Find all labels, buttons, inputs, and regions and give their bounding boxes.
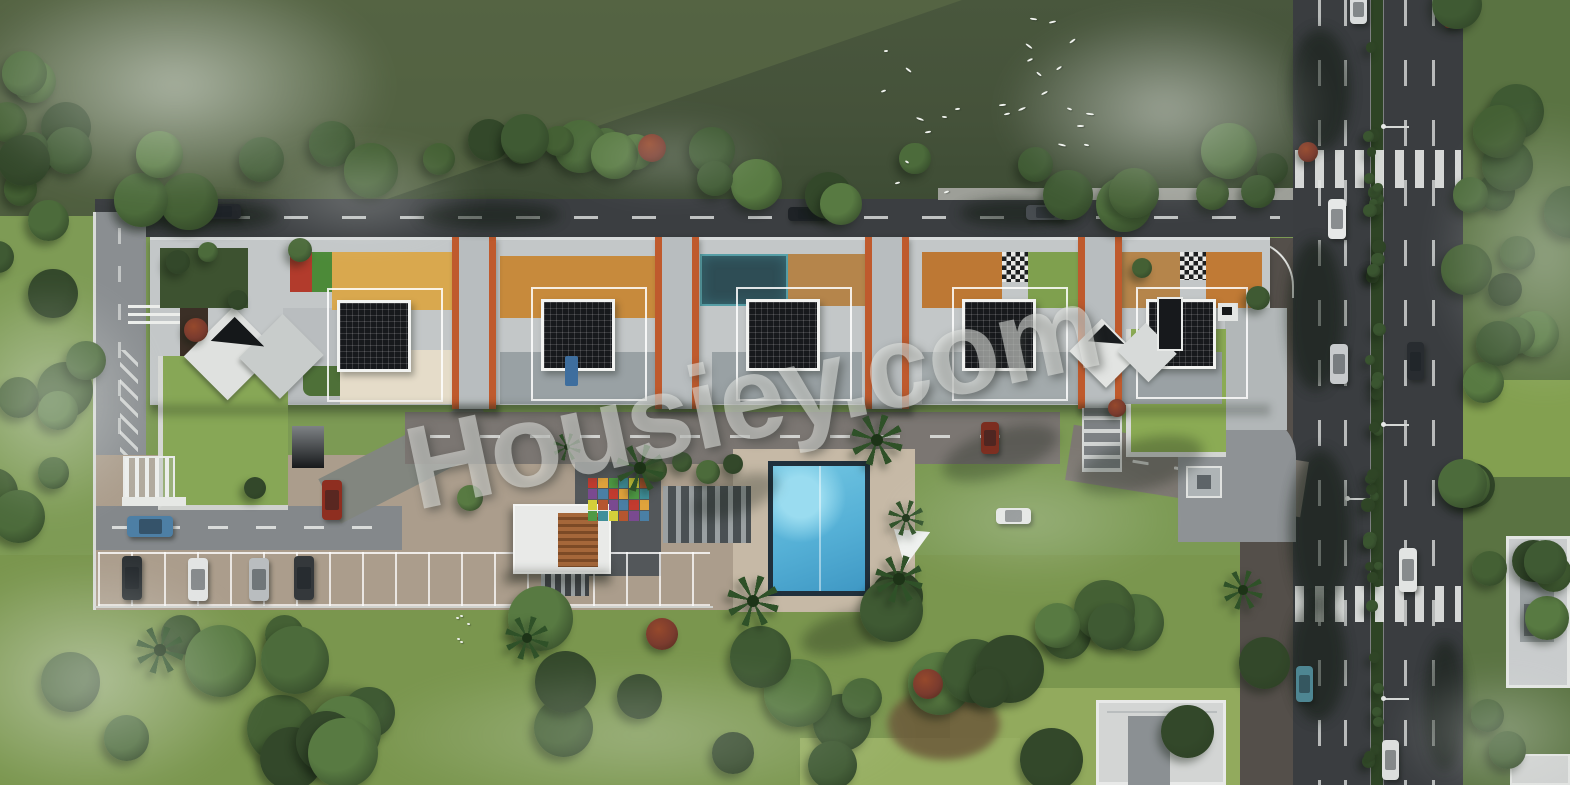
sidewalk [938,188,1294,200]
play-tile [629,511,638,521]
amenity-deck [160,248,248,308]
play-tile [609,511,618,521]
basement-ramp [292,426,324,468]
slat-screen [663,486,751,543]
street-light [1383,424,1409,426]
entry-gate-west [123,456,175,500]
solar-panel [337,300,411,372]
neighbour-building-south [1096,700,1226,785]
play-tile [598,511,607,521]
compound-wall [122,497,186,506]
hatched-marking [120,350,138,468]
car-white [996,508,1031,524]
rooftop-unit [1218,303,1238,321]
play-tile [598,500,607,510]
compound-wall [93,212,96,610]
tower-core [452,237,496,409]
zebra-crossing [1295,150,1461,188]
play-tile [629,500,638,510]
lane-dash [1318,0,1321,785]
plaza-feature [1186,466,1222,498]
play-tile [640,500,649,510]
play-tile [619,511,628,521]
street-light [1347,498,1373,500]
play-tile [588,511,597,521]
parking-stalls [98,552,710,606]
zebra-crossing [1295,586,1461,622]
play-tile [619,500,628,510]
louvered-roof [558,513,598,567]
striped-ramp [1082,408,1122,472]
neighbour-building-east [1506,536,1570,688]
play-tile [609,500,618,510]
roof-detail [1107,711,1217,713]
play-tile [640,511,649,521]
road-dash [112,526,384,529]
aerial-site-render: Housiey.com [0,0,1570,785]
lane-dash [1344,0,1347,785]
neighbour-building-corner [1510,754,1570,785]
swimming-pool [768,461,870,596]
play-tile [640,489,649,499]
lawn-east [1458,380,1570,477]
compound-wall [95,606,713,608]
roof-detail [1524,604,1544,636]
street-light [1383,698,1409,700]
roof-detail [1128,716,1170,785]
slat-screen [541,574,589,596]
amenity-deck [290,252,312,292]
street-light [1383,126,1409,128]
play-tile [588,500,597,510]
lane-dash [1432,0,1435,785]
amenity-deck [312,252,332,292]
soil-patch [888,688,1000,760]
solar-panel [541,299,615,371]
road-centerline [110,216,1280,219]
road-median [1371,0,1383,785]
lane-dash [1404,0,1407,785]
